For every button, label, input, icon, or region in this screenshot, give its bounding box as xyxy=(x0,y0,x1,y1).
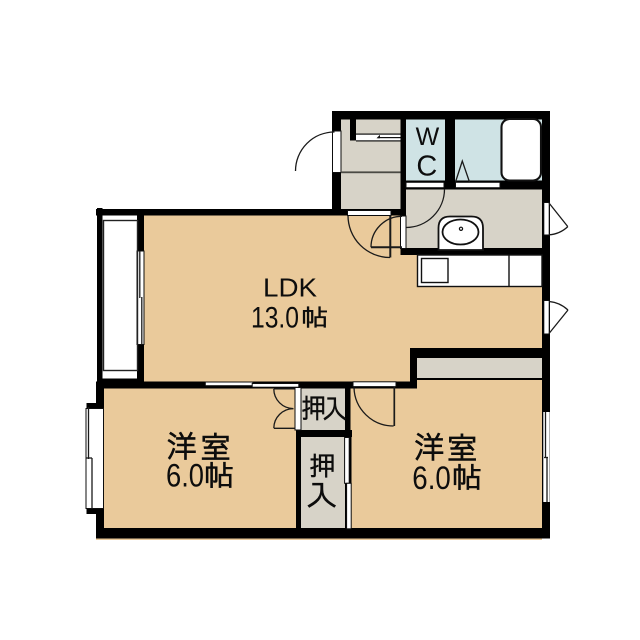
svg-text:LDK: LDK xyxy=(263,273,318,303)
svg-text:6.0: 6.0 xyxy=(412,460,451,496)
svg-text:13.0: 13.0 xyxy=(251,302,299,335)
svg-text:W: W xyxy=(416,123,440,151)
svg-text:6.0: 6.0 xyxy=(166,458,204,494)
svg-text:C: C xyxy=(416,150,437,182)
